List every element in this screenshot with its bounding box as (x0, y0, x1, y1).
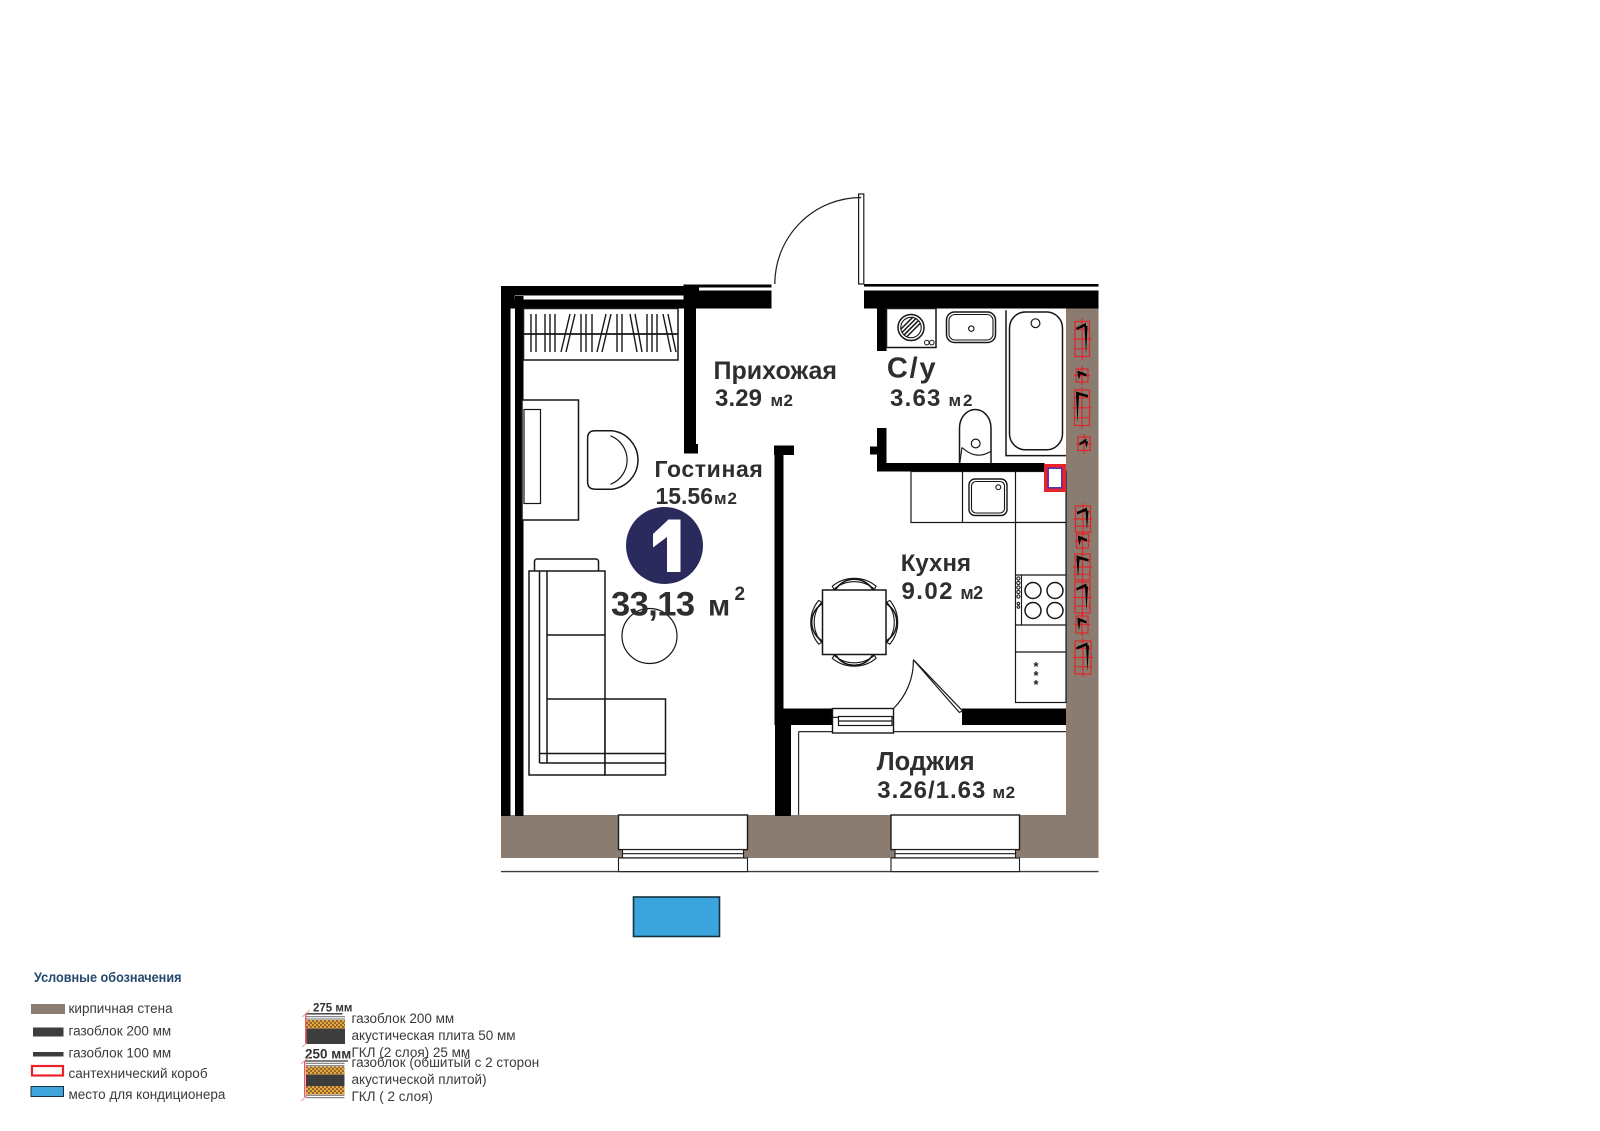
svg-text:3.29: 3.29 (715, 385, 762, 412)
svg-text:м2: м2 (960, 583, 983, 603)
svg-text:м2: м2 (714, 489, 737, 508)
svg-text:250 мм: 250 мм (305, 1047, 351, 1062)
svg-text:Лоджия: Лоджия (877, 748, 975, 776)
svg-text:3.63: 3.63 (890, 385, 940, 412)
svg-text:газоблок 100 мм: газоблок 100 мм (69, 1046, 172, 1061)
svg-text:кирпичная стена: кирпичная стена (69, 1001, 174, 1016)
svg-text:Прихожая: Прихожая (714, 357, 838, 385)
svg-text:33,13: 33,13 (611, 586, 695, 624)
svg-text:сантехнический короб: сантехнический короб (69, 1066, 208, 1081)
svg-text:15.56: 15.56 (656, 483, 714, 509)
svg-text:275 мм: 275 мм (313, 1003, 352, 1015)
svg-text:м: м (708, 590, 730, 623)
svg-text:газоблок (обшитый с 2 сторон: газоблок (обшитый с 2 сторон (352, 1055, 540, 1070)
svg-text:2: 2 (735, 584, 746, 605)
svg-text:ГКЛ ( 2 слоя): ГКЛ ( 2 слоя) (352, 1089, 433, 1104)
svg-text:газоблок 200 мм: газоблок 200 мм (69, 1024, 172, 1039)
svg-text:газоблок 200 мм: газоблок 200 мм (352, 1011, 455, 1026)
svg-text:3.26/1.63: 3.26/1.63 (877, 777, 985, 804)
svg-text:С/у: С/у (887, 353, 936, 385)
svg-text:Гостиная: Гостиная (655, 456, 763, 482)
svg-text:акустической плитой): акустической плитой) (352, 1072, 487, 1087)
svg-text:акустическая плита 50 мм: акустическая плита 50 мм (352, 1028, 516, 1043)
svg-text:место для кондиционера: место для кондиционера (69, 1087, 226, 1102)
svg-text:9.02: 9.02 (902, 578, 953, 605)
svg-text:м2: м2 (993, 783, 1016, 802)
svg-text:Условные обозначения: Условные обозначения (34, 970, 182, 985)
svg-text:м2: м2 (949, 391, 973, 410)
svg-text:Кухня: Кухня (901, 550, 971, 577)
svg-text:м2: м2 (771, 391, 794, 410)
